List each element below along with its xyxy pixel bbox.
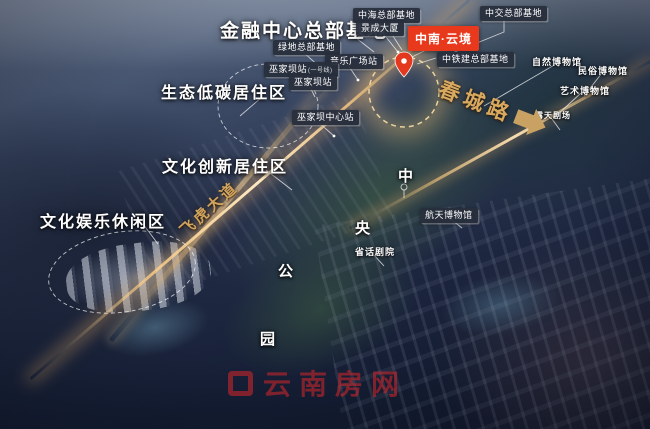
poi-badge-lvdi-hq: 绿地总部基地	[273, 40, 340, 55]
project-name-badge: 中南·云境	[408, 26, 479, 51]
station-label: 巫家坝站	[269, 64, 307, 74]
arrow-right-icon	[511, 103, 551, 141]
road-label-feihu: 飞虎大道	[175, 177, 243, 241]
road-name: 春城路	[435, 73, 519, 129]
watermark: 云南房网	[228, 363, 407, 403]
lake	[436, 267, 563, 343]
road-name: 飞虎大道	[177, 179, 242, 240]
tower-cluster	[62, 234, 214, 319]
poi-label-drama-theater: 省话剧院	[355, 245, 395, 258]
lake	[95, 289, 214, 366]
watermark-text: 云南房网	[263, 363, 407, 403]
station-badge-wujiaba: 巫家坝站	[289, 75, 337, 90]
poi-badge-jingcheng: 景成大厦	[356, 21, 404, 36]
masterplan-aerial-map: 金融中心总部基地 生态低碳居住区 文化创新居住区 文化娱乐休闲区 中南·云境 中…	[0, 0, 650, 429]
park-char-gong: 公	[278, 260, 293, 281]
background-city-warm	[430, 230, 650, 429]
poi-badge-ztj-hq: 中铁建总部基地	[437, 52, 514, 67]
poi-badge-zhongjiao-hq: 中交总部基地	[480, 6, 547, 21]
road-label-chuncheng: 春城路	[435, 73, 551, 142]
zone-title-culture-leisure: 文化娱乐休闲区	[40, 208, 166, 232]
park-char-yuan: 园	[260, 328, 275, 349]
watermark-logo-icon	[228, 371, 253, 396]
poi-badge-aerospace-museum: 航天博物馆	[420, 208, 478, 223]
park-char-yang: 央	[355, 217, 370, 238]
station-line-suffix: (一号线)	[308, 68, 333, 74]
main-glowing-road	[29, 0, 470, 380]
poi-label-folk-museum: 民俗博物馆	[578, 64, 628, 77]
zone-title-eco-lowcarbon: 生态低碳居住区	[161, 79, 287, 103]
dashed-zone-ellipse	[43, 221, 202, 323]
location-pin-icon	[395, 52, 413, 77]
poi-label-art-museum: 艺术博物馆	[560, 84, 610, 97]
park-char-zhong: 中	[398, 165, 413, 186]
zone-title-culture-innov: 文化创新居住区	[162, 153, 288, 177]
station-badge-wujiaba-center: 巫家坝中心站	[292, 110, 359, 125]
poi-label-nature-museum: 自然博物馆	[532, 55, 582, 68]
